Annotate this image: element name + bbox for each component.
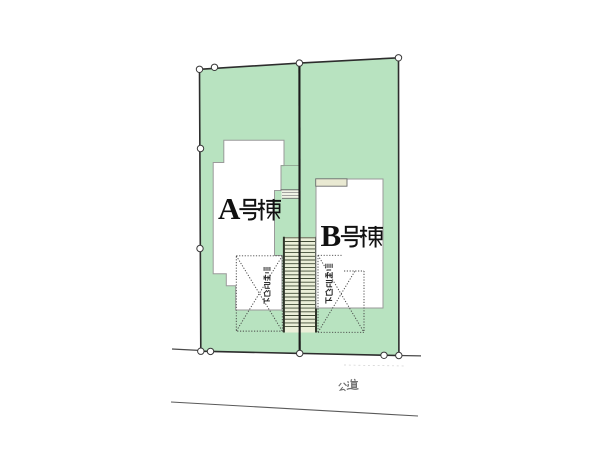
svg-text:A: A xyxy=(218,191,241,226)
svg-text:B: B xyxy=(321,218,342,253)
